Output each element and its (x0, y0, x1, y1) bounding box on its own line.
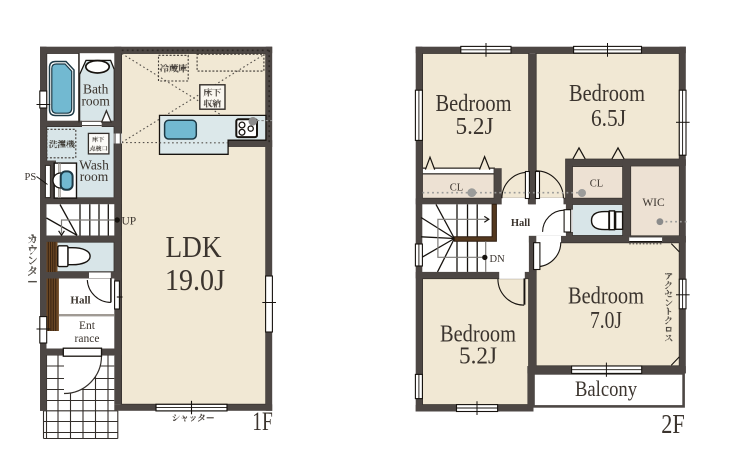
svg-text:2F: 2F (661, 409, 685, 439)
svg-text:Balcony: Balcony (575, 376, 637, 401)
svg-text:5.2J: 5.2J (456, 114, 494, 140)
svg-text:CL: CL (590, 179, 603, 190)
svg-text:5.2J: 5.2J (459, 344, 497, 370)
svg-text:UP: UP (122, 216, 137, 228)
svg-text:Bedroom: Bedroom (569, 81, 645, 107)
svg-text:1F: 1F (252, 407, 273, 436)
svg-text:CL: CL (450, 183, 463, 194)
svg-text:Hall: Hall (511, 218, 530, 229)
svg-text:PS: PS (25, 172, 37, 183)
svg-text:DN: DN (490, 254, 506, 265)
svg-text:7.0J: 7.0J (590, 308, 622, 334)
svg-text:rance: rance (75, 333, 100, 345)
svg-text:Bedroom: Bedroom (568, 284, 644, 310)
svg-text:room: room (81, 94, 110, 109)
svg-text:6.5J: 6.5J (591, 106, 626, 132)
svg-text:19.0J: 19.0J (165, 262, 225, 297)
svg-text:Hall: Hall (70, 295, 90, 307)
svg-text:Ent: Ent (79, 320, 96, 332)
svg-text:WIC: WIC (642, 197, 665, 209)
svg-text:room: room (80, 169, 109, 184)
svg-text:LDK: LDK (166, 229, 223, 264)
